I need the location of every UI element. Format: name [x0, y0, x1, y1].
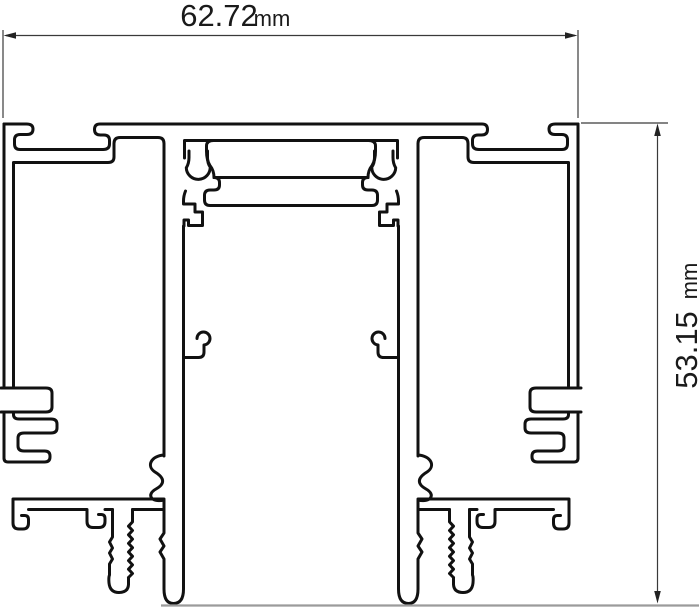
profile-cross-section-drawing: 62.72 mm 53.15 mm	[0, 0, 700, 611]
arrow-up-icon	[654, 124, 661, 137]
wing-cavity-top	[14, 138, 165, 457]
side-slot-pocket	[1, 388, 52, 412]
arrow-down-icon	[654, 591, 661, 604]
arrow-right-icon	[565, 32, 578, 39]
height-dimension-value: 53.15	[669, 311, 700, 389]
retention-hook	[184, 332, 210, 357]
profile-outline-left-half	[1, 124, 291, 604]
screw-boss	[109, 510, 133, 593]
width-dimension-unit: mm	[254, 6, 291, 31]
wing-floor-steps	[4, 412, 57, 462]
height-dimension-unit: mm	[677, 263, 700, 300]
wall-step-notch	[184, 141, 203, 227]
channel-interior-top	[185, 141, 291, 178]
shelf-rail-end	[205, 178, 292, 206]
height-dimension: 53.15 mm	[581, 123, 700, 604]
profile-outline-right-half	[291, 124, 581, 604]
bottom-flange	[13, 499, 164, 529]
arrow-left-icon	[4, 32, 17, 39]
width-dimension: 62.72 mm	[3, 0, 578, 118]
width-dimension-value: 62.72	[180, 0, 258, 33]
technical-drawing-canvas: 62.72 mm 53.15 mm	[0, 0, 700, 611]
